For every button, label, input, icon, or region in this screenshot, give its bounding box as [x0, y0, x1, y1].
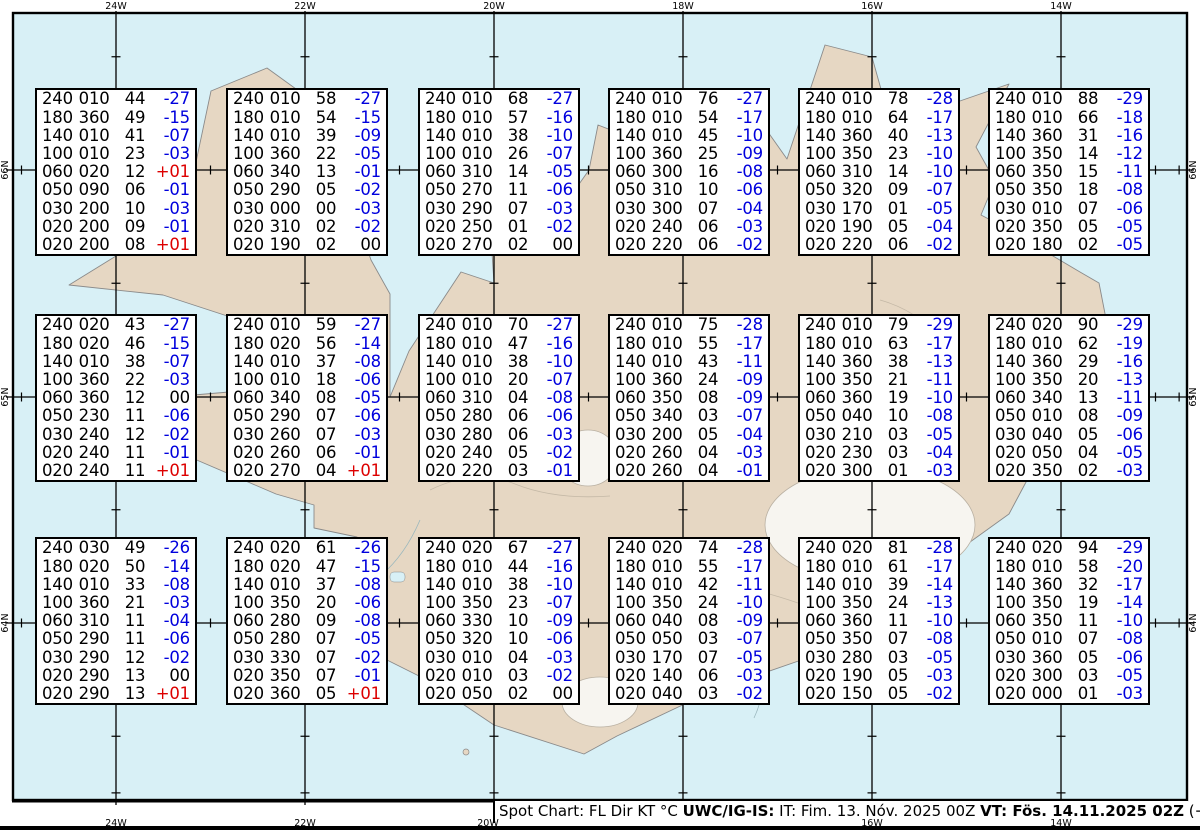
flight-level: 030	[425, 649, 458, 667]
temperature: -15	[149, 335, 190, 353]
spot-box: 24001078-2818001064-1714036040-131003502…	[798, 88, 960, 256]
spot-row: 18001055-17	[615, 335, 763, 353]
temperature: -16	[532, 558, 573, 576]
wind-speed: 01	[882, 462, 908, 480]
flight-level: 140	[995, 576, 1028, 594]
flight-level: 100	[805, 145, 838, 163]
temperature: 00	[532, 685, 573, 703]
temperature: -02	[340, 181, 381, 199]
temperature: -04	[912, 218, 953, 236]
wind-dir: 340	[652, 407, 689, 425]
wind-speed: 07	[1072, 200, 1098, 218]
wind-speed: 24	[692, 594, 718, 612]
wind-dir: 350	[1032, 371, 1069, 389]
temperature: -28	[912, 539, 953, 557]
wind-dir: 190	[270, 236, 307, 254]
flight-level: 140	[425, 127, 458, 145]
temperature: -03	[722, 667, 763, 685]
wind-speed: 05	[310, 685, 336, 703]
temperature: -07	[722, 407, 763, 425]
temperature: -09	[722, 612, 763, 630]
spot-box: 24001079-2918001063-1714036038-131003502…	[798, 314, 960, 482]
flight-level: 030	[995, 200, 1028, 218]
spot-row: 18001062-19	[995, 335, 1143, 353]
flight-level: 060	[42, 389, 75, 407]
flight-level: 020	[805, 444, 838, 462]
flight-level: 240	[425, 90, 458, 108]
wind-dir: 010	[842, 90, 879, 108]
temperature: -03	[340, 426, 381, 444]
temperature: -16	[532, 109, 573, 127]
temperature: -13	[912, 594, 953, 612]
spot-row: 10036021-03	[42, 594, 190, 612]
flight-level: 240	[615, 90, 648, 108]
flight-level: 030	[42, 649, 75, 667]
spot-box: 24002074-2818001055-1714001042-111003502…	[608, 537, 770, 705]
spot-row: 03029012-02	[42, 649, 190, 667]
wind-dir: 240	[462, 444, 499, 462]
wind-dir: 300	[1032, 667, 1069, 685]
spot-row: 10035023-10	[805, 145, 953, 163]
flight-level: 240	[42, 539, 75, 557]
flight-level: 180	[615, 109, 648, 127]
temperature: -15	[340, 558, 381, 576]
wind-speed: 04	[502, 649, 528, 667]
spot-row: 06036019-10	[805, 389, 953, 407]
wind-speed: 54	[310, 109, 336, 127]
spot-row: 18002046-15	[42, 335, 190, 353]
flight-level: 100	[615, 594, 648, 612]
spot-row: 14001033-08	[42, 576, 190, 594]
wind-speed: 04	[692, 462, 718, 480]
wind-dir: 020	[79, 316, 116, 334]
temperature: -03	[532, 649, 573, 667]
spot-box: 24001058-2718001054-1514001039-091003602…	[226, 88, 388, 256]
spot-row: 03020005-04	[615, 426, 763, 444]
spot-row: 05028006-06	[425, 407, 573, 425]
temperature: -06	[149, 630, 190, 648]
spot-row: 06034013-11	[995, 389, 1143, 407]
flight-level: 020	[995, 218, 1028, 236]
wind-dir: 010	[652, 576, 689, 594]
flight-level: 020	[615, 667, 648, 685]
temperature: -27	[340, 90, 381, 108]
wind-dir: 360	[270, 685, 307, 703]
wind-speed: 01	[502, 218, 528, 236]
wind-dir: 320	[842, 181, 879, 199]
spot-row: 14036032-17	[995, 576, 1143, 594]
spot-row: 03020010-03	[42, 200, 190, 218]
wind-dir: 280	[270, 630, 307, 648]
spot-row: 02024006-03	[615, 218, 763, 236]
flight-level: 060	[805, 163, 838, 181]
wind-speed: 09	[310, 612, 336, 630]
flight-level: 020	[995, 444, 1028, 462]
chart-caption: Spot Chart: FL Dir KT °C UWC/IG-IS: IT: …	[493, 801, 1188, 823]
temperature: -19	[1102, 335, 1143, 353]
wind-dir: 360	[1032, 353, 1069, 371]
wind-speed: 11	[502, 181, 528, 199]
spot-row: 0603601200	[42, 389, 190, 407]
wind-dir: 010	[462, 109, 499, 127]
wind-dir: 240	[79, 462, 116, 480]
wind-dir: 140	[652, 667, 689, 685]
spot-row: 02024011-01	[42, 444, 190, 462]
wind-dir: 050	[652, 630, 689, 648]
temperature: -08	[532, 389, 573, 407]
wind-dir: 250	[462, 218, 499, 236]
wind-speed: 39	[882, 576, 908, 594]
wind-dir: 010	[270, 353, 307, 371]
spot-row: 02036005+01	[233, 685, 381, 703]
flight-level: 030	[805, 426, 838, 444]
temperature: +01	[149, 236, 190, 254]
wind-speed: 07	[882, 630, 908, 648]
temperature: -17	[912, 109, 953, 127]
spot-row: 24002081-28	[805, 539, 953, 557]
flight-level: 140	[615, 576, 648, 594]
wind-speed: 49	[119, 109, 145, 127]
wind-speed: 04	[502, 389, 528, 407]
temperature: -05	[340, 630, 381, 648]
flight-level: 030	[615, 426, 648, 444]
spot-row: 14036029-16	[995, 353, 1143, 371]
wind-speed: 50	[119, 558, 145, 576]
wind-dir: 300	[842, 462, 879, 480]
spot-row: 0200500200	[425, 685, 573, 703]
wind-dir: 340	[1032, 389, 1069, 407]
temperature: -05	[340, 145, 381, 163]
temperature: -29	[1102, 316, 1143, 334]
temperature: -16	[532, 335, 573, 353]
wind-speed: 74	[692, 539, 718, 557]
temperature: -10	[722, 594, 763, 612]
wind-speed: 46	[119, 335, 145, 353]
wind-speed: 05	[310, 181, 336, 199]
wind-dir: 210	[842, 426, 879, 444]
wind-speed: 10	[502, 612, 528, 630]
temperature: -10	[532, 353, 573, 371]
flight-level: 020	[805, 685, 838, 703]
wind-speed: 63	[882, 335, 908, 353]
temperature: -11	[722, 576, 763, 594]
lat-label-left: 65N	[1, 385, 11, 409]
flight-level: 180	[425, 558, 458, 576]
spot-row: 02020009-01	[42, 218, 190, 236]
flight-level: 030	[233, 426, 266, 444]
wind-speed: 04	[310, 462, 336, 480]
wind-dir: 010	[652, 353, 689, 371]
wind-speed: 10	[692, 181, 718, 199]
temperature: -16	[1102, 353, 1143, 371]
wind-speed: 01	[882, 200, 908, 218]
flight-level: 020	[995, 236, 1028, 254]
wind-speed: 11	[1072, 612, 1098, 630]
temperature: -03	[532, 426, 573, 444]
temperature: -05	[1102, 218, 1143, 236]
wind-speed: 08	[692, 612, 718, 630]
flight-level: 060	[42, 612, 75, 630]
wind-speed: 49	[119, 539, 145, 557]
spot-row: 02026004-01	[615, 462, 763, 480]
temperature: -06	[532, 630, 573, 648]
wind-dir: 360	[842, 612, 879, 630]
spot-row: 10001023-03	[42, 145, 190, 163]
temperature: -08	[149, 576, 190, 594]
wind-dir: 010	[462, 353, 499, 371]
temperature: -14	[1102, 594, 1143, 612]
flight-level: 030	[425, 426, 458, 444]
wind-speed: 05	[692, 426, 718, 444]
temperature: -02	[340, 218, 381, 236]
temperature: -10	[912, 145, 953, 163]
spot-row: 02019005-03	[805, 667, 953, 685]
temperature: -08	[340, 612, 381, 630]
flight-level: 020	[425, 236, 458, 254]
wind-speed: 03	[692, 630, 718, 648]
flight-level: 100	[233, 145, 266, 163]
flight-level: 030	[42, 200, 75, 218]
wind-dir: 350	[842, 145, 879, 163]
wind-speed: 23	[502, 594, 528, 612]
wind-dir: 020	[842, 539, 879, 557]
temperature: -06	[340, 407, 381, 425]
wind-dir: 050	[1032, 444, 1069, 462]
wind-speed: 01	[1072, 685, 1098, 703]
wind-speed: 04	[692, 444, 718, 462]
flight-level: 020	[615, 236, 648, 254]
wind-dir: 290	[79, 649, 116, 667]
flight-level: 100	[425, 594, 458, 612]
spot-row: 10035020-06	[233, 594, 381, 612]
temperature: -10	[912, 163, 953, 181]
wind-dir: 220	[842, 236, 879, 254]
wind-speed: 38	[119, 353, 145, 371]
flight-level: 140	[805, 576, 838, 594]
wind-speed: 43	[119, 316, 145, 334]
wind-dir: 010	[79, 353, 116, 371]
temperature: -27	[532, 90, 573, 108]
flight-level: 100	[615, 371, 648, 389]
wind-speed: 90	[1072, 316, 1098, 334]
spot-row: 14001039-14	[805, 576, 953, 594]
bottom-black-strip	[0, 826, 1200, 830]
spot-row: 06030016-08	[615, 163, 763, 181]
wind-dir: 010	[1032, 90, 1069, 108]
wind-speed: 14	[502, 163, 528, 181]
temperature: -06	[532, 407, 573, 425]
wind-speed: 64	[882, 109, 908, 127]
temperature: -03	[149, 371, 190, 389]
spot-row: 02026004-03	[615, 444, 763, 462]
wind-dir: 020	[79, 163, 116, 181]
wind-dir: 010	[79, 145, 116, 163]
flight-level: 140	[233, 127, 266, 145]
spot-row: 03017007-05	[615, 649, 763, 667]
spot-row: 24002043-27	[42, 316, 190, 334]
flight-level: 140	[425, 576, 458, 594]
flight-level: 100	[995, 145, 1028, 163]
spot-row: 14001045-10	[615, 127, 763, 145]
flight-level: 140	[995, 353, 1028, 371]
flight-level: 240	[805, 90, 838, 108]
wind-dir: 040	[652, 685, 689, 703]
spot-row: 02018002-05	[995, 236, 1143, 254]
spot-row: 18001054-17	[615, 109, 763, 127]
temperature: -07	[532, 145, 573, 163]
wind-dir: 010	[652, 127, 689, 145]
flight-level: 020	[425, 218, 458, 236]
wind-dir: 350	[842, 594, 879, 612]
wind-speed: 54	[692, 109, 718, 127]
flight-level: 240	[615, 539, 648, 557]
spot-row: 10035024-13	[805, 594, 953, 612]
wind-speed: 38	[502, 576, 528, 594]
temperature: -17	[722, 558, 763, 576]
spot-row: 06033010-09	[425, 612, 573, 630]
caption-segment: Spot Chart: FL Dir KT °C	[499, 802, 683, 820]
wind-dir: 010	[652, 90, 689, 108]
wind-speed: 19	[1072, 594, 1098, 612]
spot-row: 14001041-07	[42, 127, 190, 145]
wind-dir: 350	[270, 594, 307, 612]
spot-row: 05005003-07	[615, 630, 763, 648]
wind-dir: 270	[270, 462, 307, 480]
spot-box: 24002090-2918001062-1914036029-161003502…	[988, 314, 1150, 482]
wind-dir: 010	[462, 558, 499, 576]
wind-speed: 06	[119, 181, 145, 199]
wind-speed: 37	[310, 576, 336, 594]
wind-speed: 05	[1072, 649, 1098, 667]
flight-level: 180	[233, 335, 266, 353]
flight-level: 060	[425, 612, 458, 630]
wind-dir: 010	[462, 145, 499, 163]
wind-dir: 010	[652, 335, 689, 353]
wind-speed: 02	[1072, 462, 1098, 480]
wind-speed: 13	[310, 163, 336, 181]
wind-dir: 340	[270, 163, 307, 181]
flight-level: 020	[42, 685, 75, 703]
spot-row: 10035019-14	[995, 594, 1143, 612]
wind-dir: 010	[842, 558, 879, 576]
temperature: -07	[912, 181, 953, 199]
temperature: +01	[149, 163, 190, 181]
wind-speed: 23	[119, 145, 145, 163]
spot-row: 06035015-11	[995, 163, 1143, 181]
spot-row: 05023011-06	[42, 407, 190, 425]
spot-row: 18001055-17	[615, 558, 763, 576]
temperature: -03	[722, 444, 763, 462]
flight-level: 100	[995, 594, 1028, 612]
wind-dir: 020	[1032, 539, 1069, 557]
wind-speed: 10	[882, 407, 908, 425]
spot-row: 06035011-10	[995, 612, 1143, 630]
caption-segment: (+26 h)	[1184, 802, 1200, 820]
wind-dir: 310	[270, 218, 307, 236]
spot-row: 05029005-02	[233, 181, 381, 199]
wind-dir: 090	[79, 181, 116, 199]
temperature: -02	[912, 685, 953, 703]
flight-level: 050	[995, 407, 1028, 425]
temperature: -08	[340, 353, 381, 371]
wind-speed: 21	[119, 594, 145, 612]
temperature: +01	[149, 462, 190, 480]
spot-row: 03030007-04	[615, 200, 763, 218]
wind-dir: 310	[79, 612, 116, 630]
wind-dir: 300	[652, 200, 689, 218]
wind-dir: 010	[1032, 407, 1069, 425]
spot-row: 02022003-01	[425, 462, 573, 480]
temperature: -01	[532, 462, 573, 480]
flight-level: 140	[233, 353, 266, 371]
wind-speed: 31	[1072, 127, 1098, 145]
flight-level: 020	[42, 218, 75, 236]
temperature: 00	[340, 236, 381, 254]
wind-speed: 38	[882, 353, 908, 371]
wind-dir: 010	[462, 127, 499, 145]
flight-level: 140	[42, 127, 75, 145]
flight-level: 020	[805, 462, 838, 480]
spot-box: 24001059-2718002056-1414001037-081000101…	[226, 314, 388, 482]
wind-speed: 06	[310, 444, 336, 462]
wind-speed: 66	[1072, 109, 1098, 127]
flight-level: 100	[425, 145, 458, 163]
wind-dir: 240	[79, 444, 116, 462]
spot-box: 24001068-2718001057-1614001038-101000102…	[418, 88, 580, 256]
flight-level: 060	[425, 389, 458, 407]
flight-level: 240	[42, 316, 75, 334]
wind-dir: 360	[1032, 649, 1069, 667]
flight-level: 020	[805, 236, 838, 254]
temperature: -02	[149, 649, 190, 667]
spot-row: 05028007-05	[233, 630, 381, 648]
flight-level: 030	[42, 426, 75, 444]
wind-dir: 020	[270, 539, 307, 557]
flight-level: 020	[805, 667, 838, 685]
flight-level: 050	[995, 181, 1028, 199]
wind-dir: 010	[79, 576, 116, 594]
temperature: -27	[532, 316, 573, 334]
temperature: -08	[912, 407, 953, 425]
flight-level: 240	[42, 90, 75, 108]
wind-dir: 040	[652, 612, 689, 630]
spot-row: 24001078-28	[805, 90, 953, 108]
temperature: -02	[149, 426, 190, 444]
wind-dir: 350	[652, 389, 689, 407]
wind-speed: 03	[692, 685, 718, 703]
wind-speed: 55	[692, 558, 718, 576]
wind-dir: 310	[462, 389, 499, 407]
wind-dir: 350	[1032, 462, 1069, 480]
spot-row: 02030003-05	[995, 667, 1143, 685]
wind-dir: 010	[462, 316, 499, 334]
lon-label-top: 20W	[483, 1, 504, 12]
flight-level: 020	[42, 667, 75, 685]
temperature: -11	[1102, 389, 1143, 407]
temperature: -06	[1102, 649, 1143, 667]
spot-row: 06031014-10	[805, 163, 953, 181]
wind-speed: 07	[310, 407, 336, 425]
temperature: -01	[149, 444, 190, 462]
wind-speed: 32	[1072, 576, 1098, 594]
wind-speed: 11	[119, 630, 145, 648]
wind-dir: 010	[79, 127, 116, 145]
flight-level: 050	[233, 181, 266, 199]
temperature: -10	[722, 127, 763, 145]
temperature: -05	[1102, 444, 1143, 462]
temperature: -17	[912, 558, 953, 576]
spot-row: 24002067-27	[425, 539, 573, 557]
